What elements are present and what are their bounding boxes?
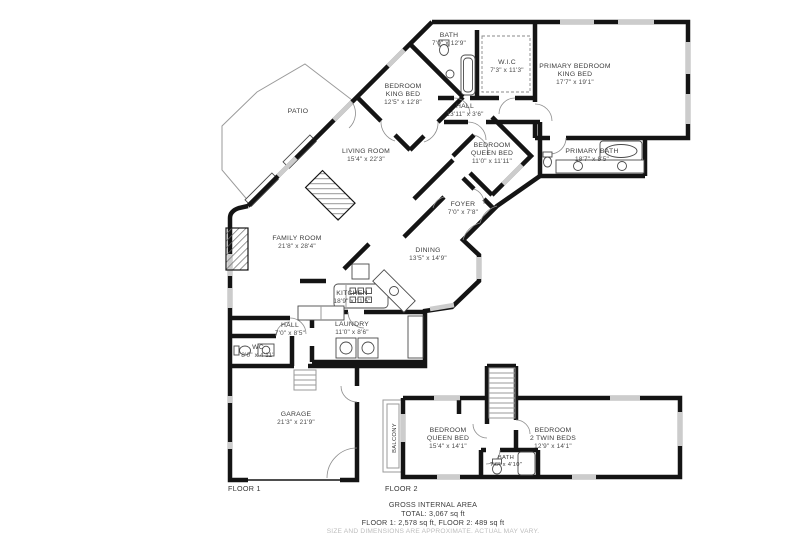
door-arcs [276,98,566,478]
room-label-laundry: LAUNDRY [335,321,369,328]
stairs-floor2 [489,368,515,418]
room-label-wic: W.I.C [498,59,516,66]
room-dims-bedroom-king: 12'5" x 12'8" [384,99,422,106]
footer: GROSS INTERNAL AREA TOTAL: 3,067 sq ft F… [327,500,540,533]
room-label-dining: DINING [415,247,440,254]
room-label-bedroom-queen-f2: BEDROOM [430,427,467,434]
room-dims-hall-lower: 7'0" x 8'5" [275,330,305,337]
walls-exterior-lower [230,176,540,480]
room-dims-bath-f2: 7'6" x 4'10" [490,462,522,468]
room-dims-bath-upper: 7'0" x 12'9" [432,40,466,47]
floor1-label: FLOOR 1 [228,484,261,493]
room-label-foyer: FOYER [451,201,476,208]
room-label-bath-f2: BATH [498,455,514,461]
room-label-kitchen: KITCHEN [336,290,368,297]
room-label2-bedroom-twin-f2: 2 TWIN BEDS [530,435,576,442]
room-label2-bedroom-queen-f2: QUEEN BED [427,435,469,442]
stairs-living-room [306,171,355,220]
room-dims-kitchen: 18'9" x 11'5" [333,298,370,305]
room-dims-laundry: 11'0" x 8'6" [335,329,368,336]
room-dims-bedroom-queen-f1: 11'0" x 11'11" [472,158,512,165]
room-dims-bedroom-queen-f2: 15'4" x 14'1" [429,443,467,450]
room-dims-primary-bath: 18'7" x 8'5" [575,156,609,163]
room-label-primary-bedroom: PRIMARY BEDROOM [539,63,611,70]
room-label-hall-upper: HALL [456,103,474,110]
room-label-family-room: FAMILY ROOM [272,235,321,242]
room-label-wc: WC [252,344,264,351]
room-dims-family-room: 21'8" x 28'4" [278,243,316,250]
room-dims-bedroom-twin-f2: 12'9" x 14'1" [534,443,572,450]
room-label-living-room: LIVING ROOM [342,148,390,155]
room-label-hall-lower: HALL [281,322,299,329]
room-label-balcony: BALCONY [392,423,398,453]
room-dims-hall-upper: 13'11" x 3'6" [446,111,483,118]
room-dims-primary-bedroom: 17'7" x 19'1" [556,79,594,86]
bath-upper-fixtures [439,40,475,95]
room-dims-dining: 13'5" x 14'9" [409,255,447,262]
room-label-primary-bath: PRIMARY BATH [565,148,618,155]
room-labels-floor1: BATH 7'0" x 12'9" W.I.C 7'3" x 11'3" PRI… [241,32,618,426]
room-label2-bedroom-king: KING BED [386,91,420,98]
floor-plan-page: BATH 7'0" x 12'9" W.I.C 7'3" x 11'3" PRI… [0,0,800,533]
walls-floor2 [403,366,680,477]
room-label-bedroom-king: BEDROOM [385,83,422,90]
room-label-bedroom-queen-f1: BEDROOM [474,142,511,149]
room-label-bath-upper: BATH [440,32,459,39]
room-dims-foyer: 7'0" x 7'8" [448,209,478,216]
room-label2-bedroom-queen-f1: QUEEN BED [471,150,513,157]
footer-heading: GROSS INTERNAL AREA [389,500,477,509]
room-label-garage: GARAGE [281,411,312,418]
floor-plan: BATH 7'0" x 12'9" W.I.C 7'3" x 11'3" PRI… [0,0,800,533]
stairs-to-garage [294,370,316,390]
room-label-bedroom-twin-f2: BEDROOM [535,427,572,434]
fireplace [226,228,248,270]
room-dims-wic: 7'3" x 11'3" [490,67,523,74]
room-label2-primary-bedroom: KING BED [558,71,592,78]
footer-floor-areas: FLOOR 1: 2,578 sq ft, FLOOR 2: 489 sq ft [362,518,505,527]
room-label-patio: PATIO [288,108,309,115]
room-dims-garage: 21'3" x 21'9" [277,419,315,426]
footer-disclaimer: SIZE AND DIMENSIONS ARE APPROXIMATE, ACT… [327,528,540,533]
floor2-label: FLOOR 2 [385,484,418,493]
room-dims-wc: 8'0" x 4'11" [241,352,274,359]
room-labels-floor2: BALCONY BEDROOM QUEEN BED 15'4" x 14'1" … [392,423,576,468]
footer-total: TOTAL: 3,067 sq ft [401,509,465,518]
room-dims-living-room: 15'4" x 22'3" [347,156,385,163]
